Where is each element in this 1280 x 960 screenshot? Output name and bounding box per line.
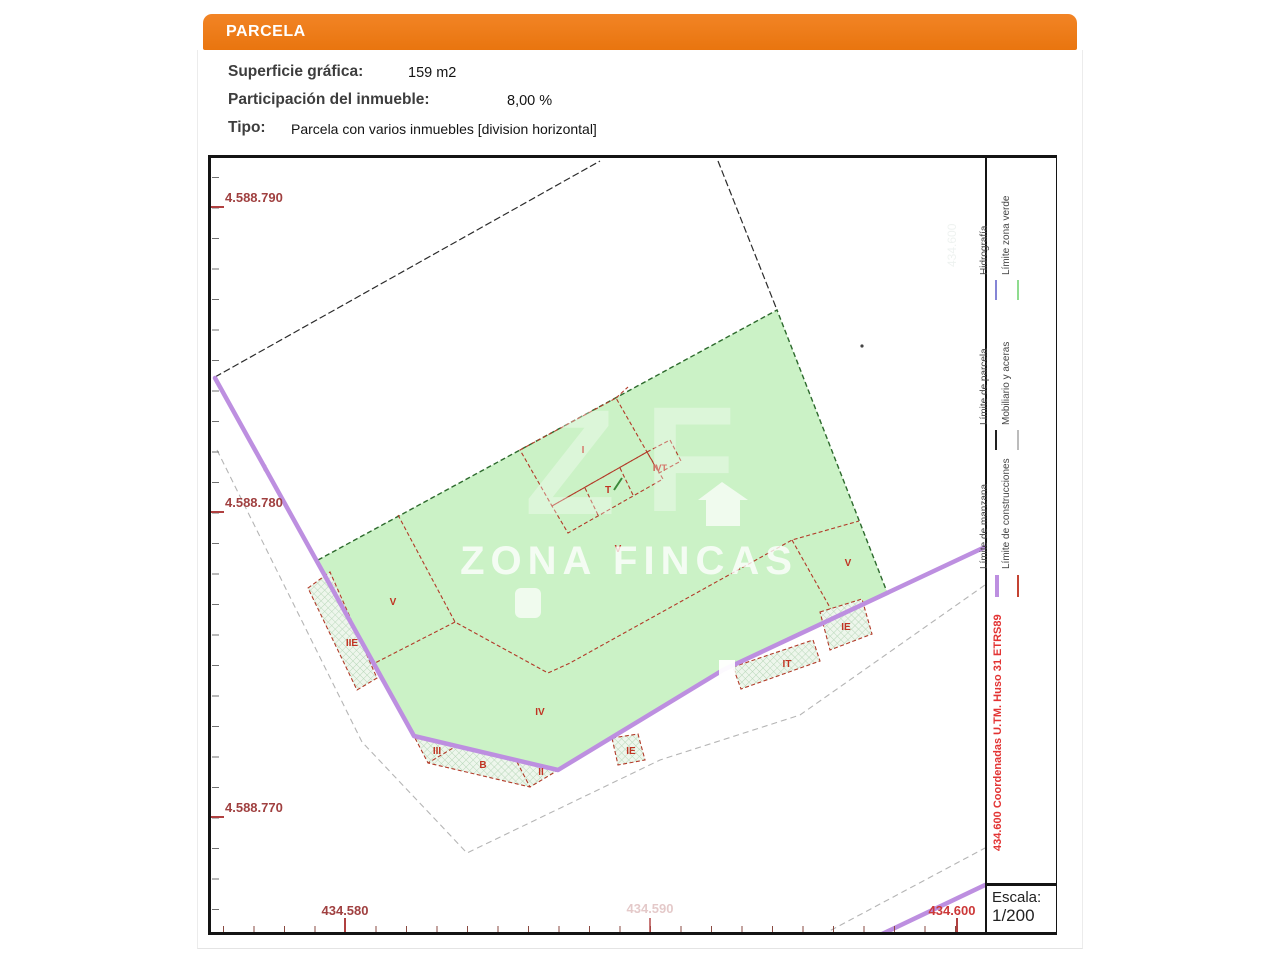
parcel-boundary-line-right	[718, 161, 777, 310]
watermark-square	[719, 660, 735, 678]
detail-value-tipo: Parcela con varios inmuebles [division h…	[291, 121, 597, 137]
x-coord-label-600: 434.600	[929, 903, 976, 918]
map-legend: Límite de manzana Límite de construccion…	[985, 158, 1056, 932]
y-coord-label-770: 4.588.770	[225, 800, 283, 815]
cadastral-map-figure: I IVT T V V V IV IIE III B II IE IT IE 4…	[208, 155, 1057, 935]
watermark-blob	[515, 588, 541, 618]
plot-label-ie-bottom: IE	[626, 746, 636, 757]
plot-label-v-right: V	[845, 558, 852, 569]
section-header-bar: PARCELA	[203, 14, 1077, 50]
legend-sample-parcela	[995, 430, 997, 450]
plot-label-iv: IV	[535, 707, 545, 718]
plot-label-it: IT	[783, 659, 792, 670]
plot-label-v-left: V	[390, 597, 397, 608]
x-coord-label-590-faint: 434.590	[627, 901, 674, 916]
detail-value-participacion: 8,00 %	[507, 93, 552, 109]
page-title: PARCELA	[203, 14, 1077, 50]
scale-label: Escala:	[992, 889, 1056, 906]
y-axis-ticks	[212, 178, 219, 910]
cadastral-map-svg: I IVT T V V V IV IIE III B II IE IT IE 4…	[211, 158, 985, 932]
legend-sample-manzana	[995, 575, 999, 597]
legend-label-limite-construcciones: Límite de construcciones	[1001, 458, 1013, 569]
legend-label-limite-manzana: Límite de manzana	[979, 484, 991, 569]
plot-label-b: B	[479, 760, 486, 771]
legend-sample-mobiliario	[1017, 430, 1019, 450]
watermark-monogram-z: Z	[524, 378, 616, 546]
watermark-wordmark: ZONA FINCAS	[460, 539, 798, 583]
sidewalk-line-bottom-right	[822, 848, 985, 932]
page: { "header": { "title": "PARCELA" }, "det…	[0, 0, 1280, 960]
scale-value: 1/200	[992, 906, 1056, 926]
legend-label-limite-parcela: Límite de parcela	[979, 348, 991, 425]
detail-label-superficie: Superficie gráfica:	[228, 63, 363, 81]
plot-label-ie-right: IE	[841, 622, 851, 633]
y-coord-label-780: 4.588.780	[225, 495, 283, 510]
plot-label-ii: II	[538, 767, 544, 778]
survey-point-dot	[860, 344, 863, 347]
scale-box: Escala: 1/200	[987, 883, 1056, 932]
detail-label-participacion: Participación del inmueble:	[228, 91, 430, 109]
legend-sample-zona-verde	[1017, 280, 1019, 300]
legend-sample-construcciones	[1017, 575, 1019, 597]
y-coord-label-790: 4.588.790	[225, 190, 283, 205]
x-coord-label-580: 434.580	[322, 903, 369, 918]
legend-label-hidrografia: Hidrografía	[979, 226, 991, 275]
x-axis-ticks	[224, 926, 956, 932]
legend-coordinate-note: 434.600 Coordenadas U.TM. Huso 31 ETRS89	[992, 614, 1004, 851]
plot-label-iii: III	[433, 746, 442, 757]
plot-label-iie: IIE	[346, 638, 359, 649]
detail-label-tipo: Tipo:	[228, 119, 266, 137]
legend-label-limite-zona-verde: Límite zona verde	[1001, 196, 1013, 276]
watermark-house-body	[706, 500, 740, 526]
legend-sample-hidrografia	[995, 280, 997, 300]
legend-label-mobiliario-aceras: Mobiliario y aceras	[1001, 342, 1013, 425]
faint-top-coord-label: 434.600	[945, 223, 959, 267]
detail-value-superficie: 159 m2	[408, 65, 456, 81]
